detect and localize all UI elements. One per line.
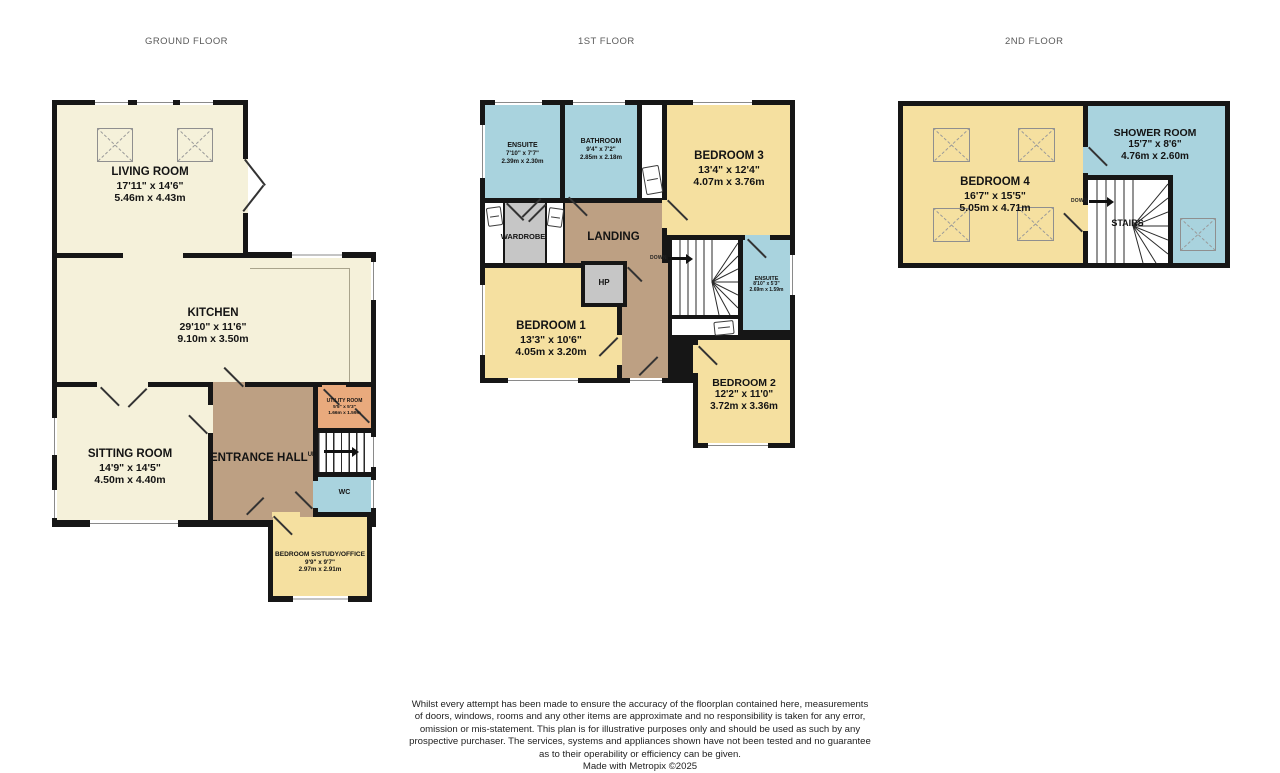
- window: [180, 100, 213, 105]
- stairs-up-arrow-head: [352, 447, 359, 457]
- window: [371, 437, 376, 467]
- bathroom-label: BATHROOM 9'4" x 7'2" 2.85m x 2.18m: [565, 138, 637, 161]
- kitchen-divider-line: [250, 268, 350, 269]
- disclaimer-line: of doors, windows, rooms and any other i…: [0, 711, 1280, 723]
- winder-stairs: [672, 240, 738, 315]
- bedroom1-label: BEDROOM 1 13'3" x 10'6" 4.05m x 3.20m: [485, 320, 617, 358]
- ensuite2-label: ENSUITE 8'10" x 5'3" 2.69m x 1.59m: [740, 276, 793, 294]
- window: [495, 100, 542, 105]
- skylight-icon: [933, 128, 970, 162]
- bedroom5-label: BEDROOM 5/STUDY/OFFICE 9'9" x 9'7" 2.97m…: [272, 551, 368, 574]
- window: [371, 262, 376, 300]
- window: [630, 378, 662, 383]
- skylight-icon: [97, 128, 133, 162]
- living-room-label: LIVING ROOM 17'11" x 14'6" 5.46m x 4.43m: [80, 166, 220, 204]
- door-opening: [272, 512, 300, 517]
- stairs-label: STAIRS: [1090, 218, 1165, 229]
- window: [293, 596, 348, 602]
- door-opening: [662, 200, 667, 228]
- ensuite-label: ENSUITE 7'10" x 7'7" 2.39m x 2.30m: [485, 142, 560, 165]
- entrance-hall-label: ENTRANCE HALLUP: [193, 452, 333, 466]
- skylight-icon: [1018, 128, 1055, 162]
- first-floor-title: 1ST FLOOR: [578, 36, 635, 47]
- stairs-down-arrow-head: [686, 254, 693, 264]
- window: [371, 480, 376, 508]
- kitchen-divider-line: [349, 268, 350, 382]
- kitchen-label: KITCHEN 29'10" x 11'6" 9.10m x 3.50m: [143, 307, 283, 345]
- window: [90, 520, 178, 527]
- window: [95, 100, 128, 105]
- disclaimer: Whilst every attempt has been made to en…: [0, 699, 1280, 773]
- disclaimer-line: prospective purchaser. The services, sys…: [0, 736, 1280, 748]
- floorplan-page: { "palette": { "room_cream": "#f5f1da", …: [0, 0, 1280, 760]
- door-opening: [123, 253, 183, 258]
- disclaimer-line: as to their operability or efficiency ca…: [0, 749, 1280, 761]
- bedroom3-label: BEDROOM 3 13'4" x 12'4" 4.07m x 3.76m: [666, 150, 792, 188]
- second-floor-title: 2ND FLOOR: [1005, 36, 1063, 47]
- stairs-down-arrow: [668, 257, 686, 260]
- wardrobe-label: WARDROBE: [483, 233, 563, 242]
- ground-floor-title: GROUND FLOOR: [145, 36, 228, 47]
- landing-label: LANDING: [565, 231, 662, 245]
- down-label: DOWN: [650, 255, 667, 261]
- cupboard-icon: [547, 207, 564, 228]
- disclaimer-line: omission or mis-statement. This plan is …: [0, 724, 1280, 736]
- skylight-icon: [177, 128, 213, 162]
- door-opening: [97, 382, 148, 387]
- window: [292, 252, 342, 258]
- window: [708, 443, 768, 448]
- sitting-room-label: SITTING ROOM 14'9" x 14'5" 4.50m x 4.40m: [50, 448, 210, 486]
- door-opening: [617, 335, 622, 365]
- cupboard-icon: [713, 320, 734, 336]
- stairs-down-arrow-head: [1107, 197, 1114, 207]
- landing-corridor: [622, 263, 668, 378]
- door-opening: [1083, 205, 1088, 231]
- window: [573, 100, 625, 105]
- bedroom2-label: BEDROOM 2 12'2" x 11'0" 3.72m x 3.36m: [696, 377, 792, 413]
- window: [693, 100, 752, 105]
- cupboard-icon: [486, 206, 503, 227]
- skylight-icon: [1180, 218, 1216, 251]
- door-opening: [1083, 147, 1088, 173]
- stairs-down-arrow: [1089, 200, 1107, 203]
- hp-label: HP: [581, 278, 627, 287]
- up-indicator: UP: [308, 452, 316, 458]
- door-opening: [693, 345, 698, 373]
- door-opening: [208, 405, 213, 433]
- window: [137, 100, 173, 105]
- window: [52, 490, 57, 518]
- wc-label: WC: [318, 489, 371, 497]
- disclaimer-line: Whilst every attempt has been made to en…: [0, 699, 1280, 711]
- bedroom4-label: BEDROOM 4 16'7" x 15'5" 5.05m x 4.71m: [915, 176, 1075, 214]
- utility-room-label: UTILITY ROOM 5'5" x 5'3" 1.66m x 1.59m: [316, 399, 373, 416]
- metropix-credit: Made with Metropix ©2025: [0, 761, 1280, 773]
- window: [508, 378, 578, 383]
- shower-room-label: SHOWER ROOM 15'7" x 8'6" 4.76m x 2.60m: [1092, 127, 1218, 163]
